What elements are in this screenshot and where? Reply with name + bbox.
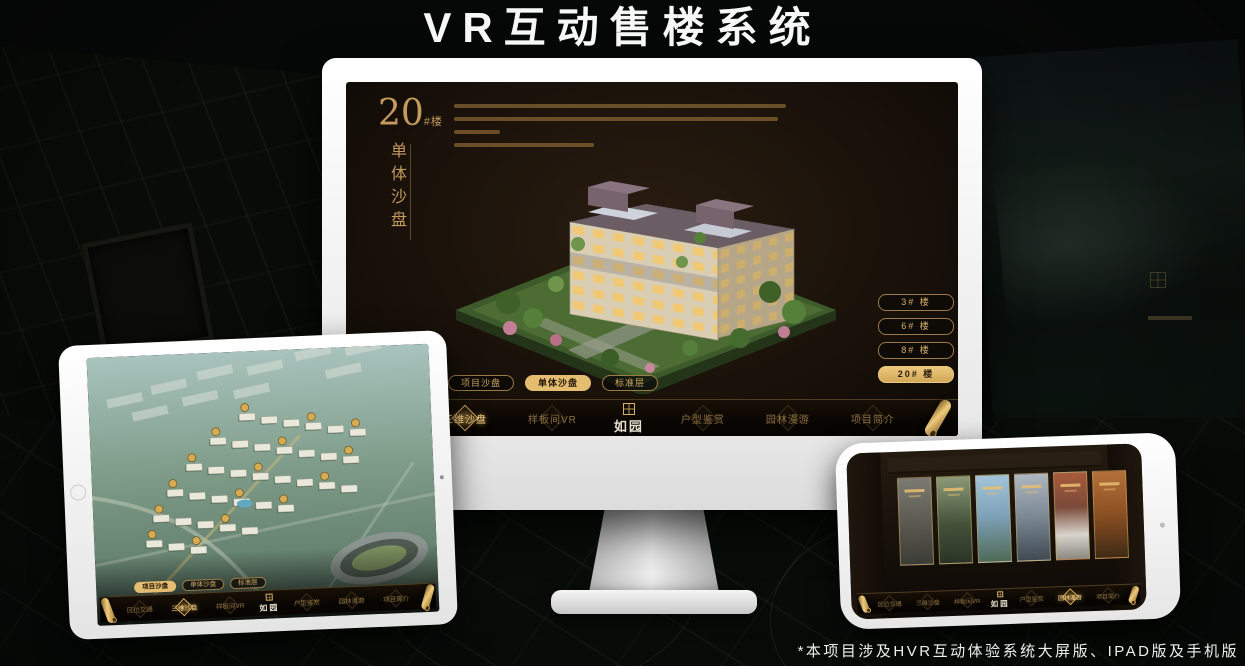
home-button[interactable] bbox=[70, 484, 87, 501]
nav-item-location-traffic[interactable]: 区位交通 bbox=[123, 603, 157, 614]
building-number-suffix: #楼 bbox=[424, 116, 443, 128]
gallery-panel[interactable] bbox=[1092, 470, 1129, 559]
ruyuan-seal-icon bbox=[997, 591, 1003, 597]
floor-button-group: 3# 楼 6# 楼 8# 楼 20# 楼 bbox=[878, 294, 956, 390]
nav-item-garden-tour[interactable]: 园林漫游 bbox=[762, 411, 814, 426]
phone-screen: 区位交通 三维沙盘 样板间VR 如园 户型鉴赏 园林漫游 项目简介 bbox=[846, 443, 1147, 619]
nav-item-project-intro[interactable]: 项目简介 bbox=[379, 592, 413, 603]
scroll-roller-icon[interactable] bbox=[420, 583, 435, 610]
nav-item-unit-gallery[interactable]: 户型鉴赏 bbox=[677, 411, 729, 426]
gallery-panel[interactable] bbox=[975, 474, 1012, 563]
tab-project-sandtable[interactable]: 项目沙盘 bbox=[134, 581, 176, 594]
background-river-photo bbox=[993, 140, 1238, 339]
scroll-roller-icon[interactable] bbox=[923, 398, 953, 436]
ipad-device: 项目沙盘 单体沙盘 标准层 区位交通 三维沙盘 样板间VR 如园 户型鉴赏 园林… bbox=[58, 330, 458, 640]
floor-button-20[interactable]: 20# 楼 bbox=[878, 366, 954, 383]
sand-table-3d-model[interactable] bbox=[438, 142, 868, 394]
tab-single-sandtable[interactable]: 单体沙盘 bbox=[182, 579, 224, 592]
building-number-heading: 20#楼 bbox=[378, 96, 443, 132]
brand-logo: 如园 bbox=[259, 593, 280, 613]
nav-item-garden-tour[interactable]: 园林漫游 bbox=[334, 594, 368, 605]
scroll-roller-icon[interactable] bbox=[1128, 585, 1140, 604]
nav-item-project-intro[interactable]: 项目简介 bbox=[847, 411, 899, 426]
title-divider-line bbox=[410, 144, 411, 240]
text-line bbox=[454, 104, 786, 108]
text-line bbox=[454, 117, 778, 121]
tab-standard-floor[interactable]: 标准层 bbox=[230, 577, 266, 589]
nav-item-location-traffic[interactable]: 区位交通 bbox=[873, 598, 905, 608]
gallery-panel[interactable] bbox=[897, 477, 934, 566]
background-gold-text bbox=[1148, 316, 1192, 320]
floor-button-8[interactable]: 8# 楼 bbox=[878, 342, 954, 359]
tab-single-sandtable[interactable]: 单体沙盘 bbox=[525, 375, 591, 391]
background-photo-collage-right bbox=[968, 39, 1245, 467]
ruyuan-seal-icon bbox=[265, 593, 272, 600]
scene-gallery bbox=[897, 470, 1129, 566]
scroll-roller-icon[interactable] bbox=[857, 594, 870, 613]
sandtable-mode-tabs: 项目沙盘 单体沙盘 标准层 bbox=[448, 375, 658, 391]
tab-project-sandtable[interactable]: 项目沙盘 bbox=[448, 375, 514, 391]
monitor-stand-base bbox=[551, 590, 757, 614]
nav-item-unit-gallery[interactable]: 户型鉴赏 bbox=[290, 596, 324, 607]
background-seal-icon bbox=[1150, 272, 1166, 288]
nav-item-3d-sandtable[interactable]: 三维沙盘 bbox=[912, 597, 944, 607]
poster-canvas: VR互动售楼系统 20#楼 单体沙盘 bbox=[0, 0, 1245, 666]
nav-item-showroom-vr[interactable]: 样板间VR bbox=[950, 595, 985, 605]
scroll-roller-icon[interactable] bbox=[100, 596, 117, 623]
page-title: VR互动售楼系统 bbox=[0, 0, 1245, 58]
nav-item-garden-tour[interactable]: 园林漫游 bbox=[1054, 592, 1086, 602]
footnote-text: *本项目涉及HVR互动体验系统大屏版、IPAD版及手机版 bbox=[798, 640, 1239, 661]
camera-icon bbox=[440, 475, 444, 479]
gallery-panel[interactable] bbox=[1053, 471, 1090, 560]
ipad-screen: 项目沙盘 单体沙盘 标准层 区位交通 三维沙盘 样板间VR 如园 户型鉴赏 园林… bbox=[87, 344, 440, 626]
gallery-panel[interactable] bbox=[936, 475, 973, 564]
nav-item-showroom-vr[interactable]: 样板间VR bbox=[524, 411, 581, 426]
floor-button-3[interactable]: 3# 楼 bbox=[878, 294, 954, 311]
phone-navbar: 区位交通 三维沙盘 样板间VR 如园 户型鉴赏 园林漫游 项目简介 bbox=[857, 583, 1141, 614]
ruyuan-seal-icon bbox=[623, 403, 635, 415]
section-title-vertical: 单体沙盘 bbox=[384, 142, 408, 262]
nav-item-3d-sandtable[interactable]: 三维沙盘 bbox=[167, 601, 201, 612]
brand-logo: 如园 bbox=[990, 590, 1010, 608]
nav-item-showroom-vr[interactable]: 样板间VR bbox=[212, 599, 249, 611]
tab-standard-floor[interactable]: 标准层 bbox=[602, 375, 658, 391]
nav-item-project-intro[interactable]: 项目简介 bbox=[1092, 590, 1124, 600]
monitor-stand-neck bbox=[588, 506, 720, 598]
interior-beam-decor bbox=[888, 451, 1101, 474]
gallery-panel[interactable] bbox=[1014, 473, 1051, 562]
text-line bbox=[454, 130, 500, 134]
nav-item-unit-gallery[interactable]: 户型鉴赏 bbox=[1016, 593, 1048, 603]
phone-device: 区位交通 三维沙盘 样板间VR 如园 户型鉴赏 园林漫游 项目简介 bbox=[835, 432, 1181, 630]
floor-button-6[interactable]: 6# 楼 bbox=[878, 318, 954, 335]
camera-icon bbox=[1160, 523, 1165, 528]
brand-logo: 如园 bbox=[614, 403, 644, 434]
